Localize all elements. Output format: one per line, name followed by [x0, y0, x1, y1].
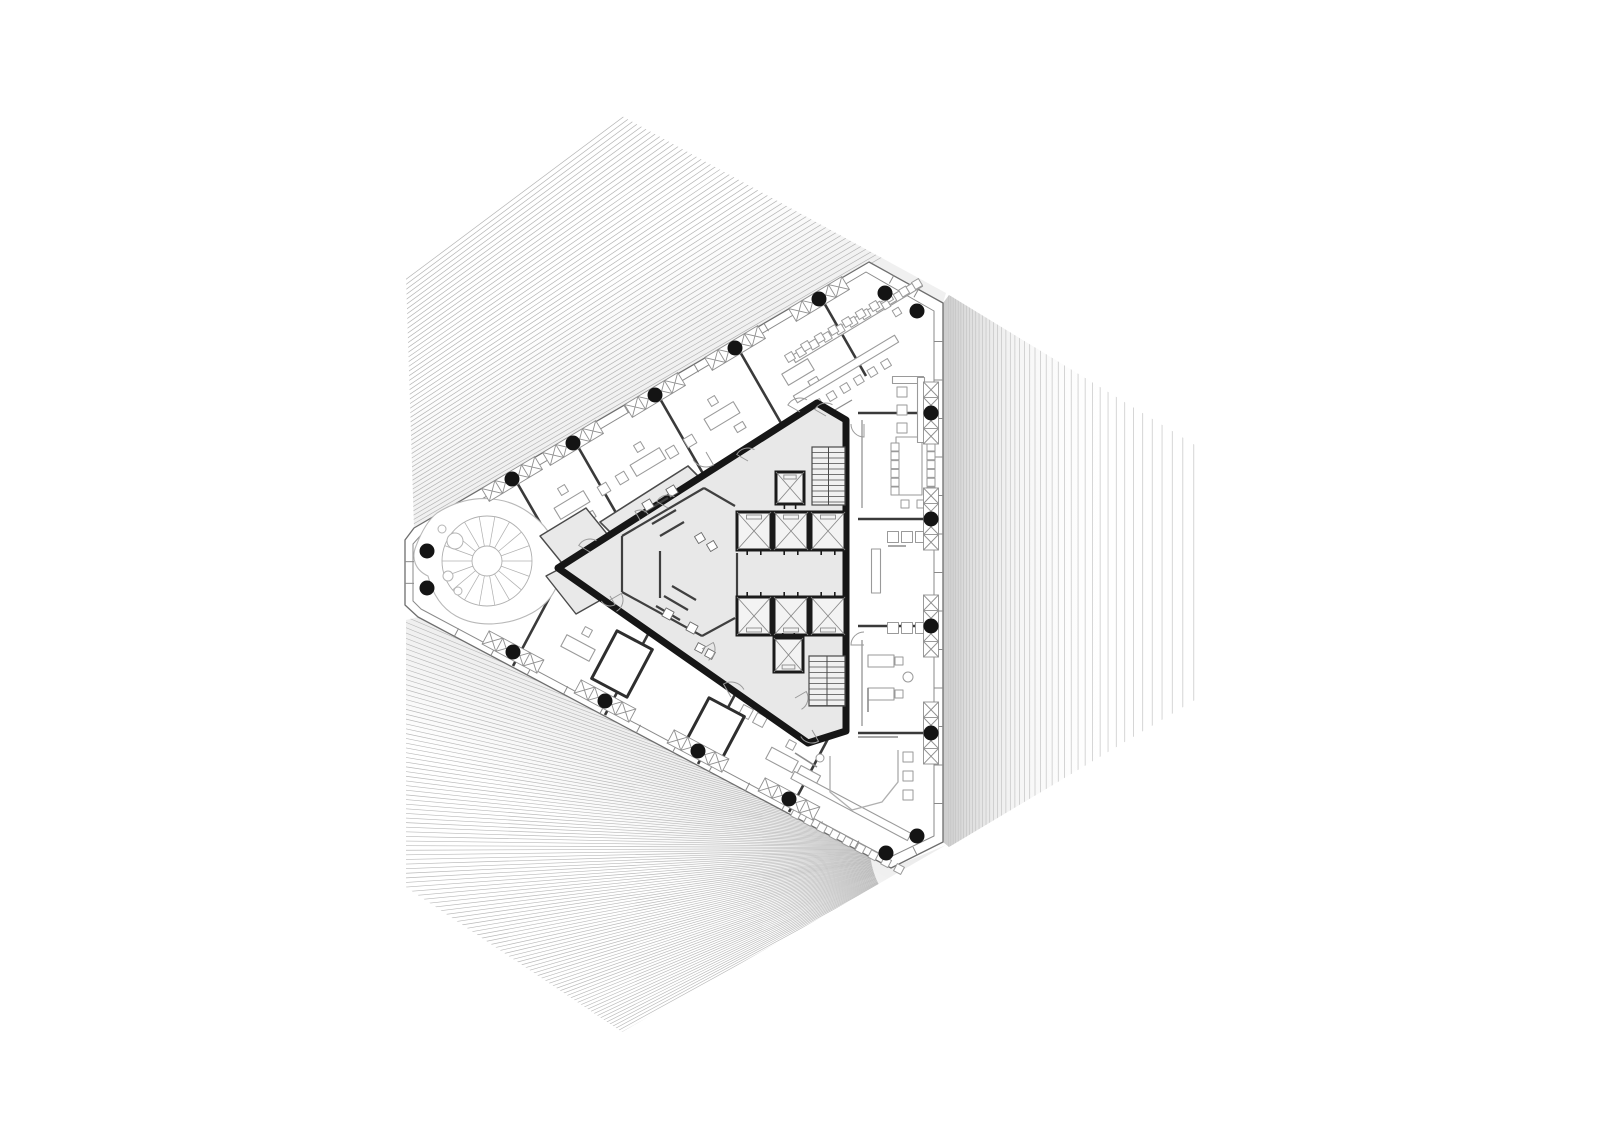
floor-plan-svg	[0, 0, 1600, 1132]
column	[782, 792, 797, 807]
column	[878, 286, 893, 301]
column	[691, 744, 706, 759]
chair	[891, 478, 899, 486]
column	[505, 472, 520, 487]
desk	[868, 655, 894, 667]
chair	[927, 461, 935, 469]
side-table	[816, 754, 824, 762]
chair	[891, 452, 899, 460]
chair	[895, 657, 903, 665]
column	[879, 846, 894, 861]
lounge-plants	[438, 525, 446, 533]
chair	[903, 752, 913, 762]
chair	[902, 623, 913, 634]
desk	[872, 549, 881, 593]
floor-plan-drawing: Architectural drawing: typical floor pla…	[0, 0, 1600, 1132]
chair	[897, 405, 907, 415]
chair	[895, 690, 903, 698]
column	[924, 406, 939, 421]
desk	[896, 437, 922, 495]
chair	[927, 452, 935, 460]
lounge-plants	[454, 587, 462, 595]
column	[648, 388, 663, 403]
desk	[868, 688, 894, 700]
chair	[897, 387, 907, 397]
column	[506, 645, 521, 660]
hatch-field-right	[943, 270, 1205, 870]
chair	[891, 461, 899, 469]
column	[910, 829, 925, 844]
column	[910, 304, 925, 319]
side-table	[903, 672, 913, 682]
column	[420, 544, 435, 559]
chair	[891, 443, 899, 451]
chair	[902, 532, 913, 543]
column	[924, 726, 939, 741]
chair	[927, 469, 935, 477]
column	[728, 341, 743, 356]
lounge-plants	[443, 571, 453, 581]
column	[812, 292, 827, 307]
chair	[901, 500, 909, 508]
chair	[897, 423, 907, 433]
chair	[903, 771, 913, 781]
chair	[903, 790, 913, 800]
chair	[891, 469, 899, 477]
column	[924, 619, 939, 634]
chair	[891, 487, 899, 495]
chair	[888, 623, 899, 634]
column	[566, 436, 581, 451]
column	[598, 694, 613, 709]
lounge-plants	[447, 533, 463, 549]
column	[420, 581, 435, 596]
chair	[927, 478, 935, 486]
chair	[888, 532, 899, 543]
column	[924, 512, 939, 527]
